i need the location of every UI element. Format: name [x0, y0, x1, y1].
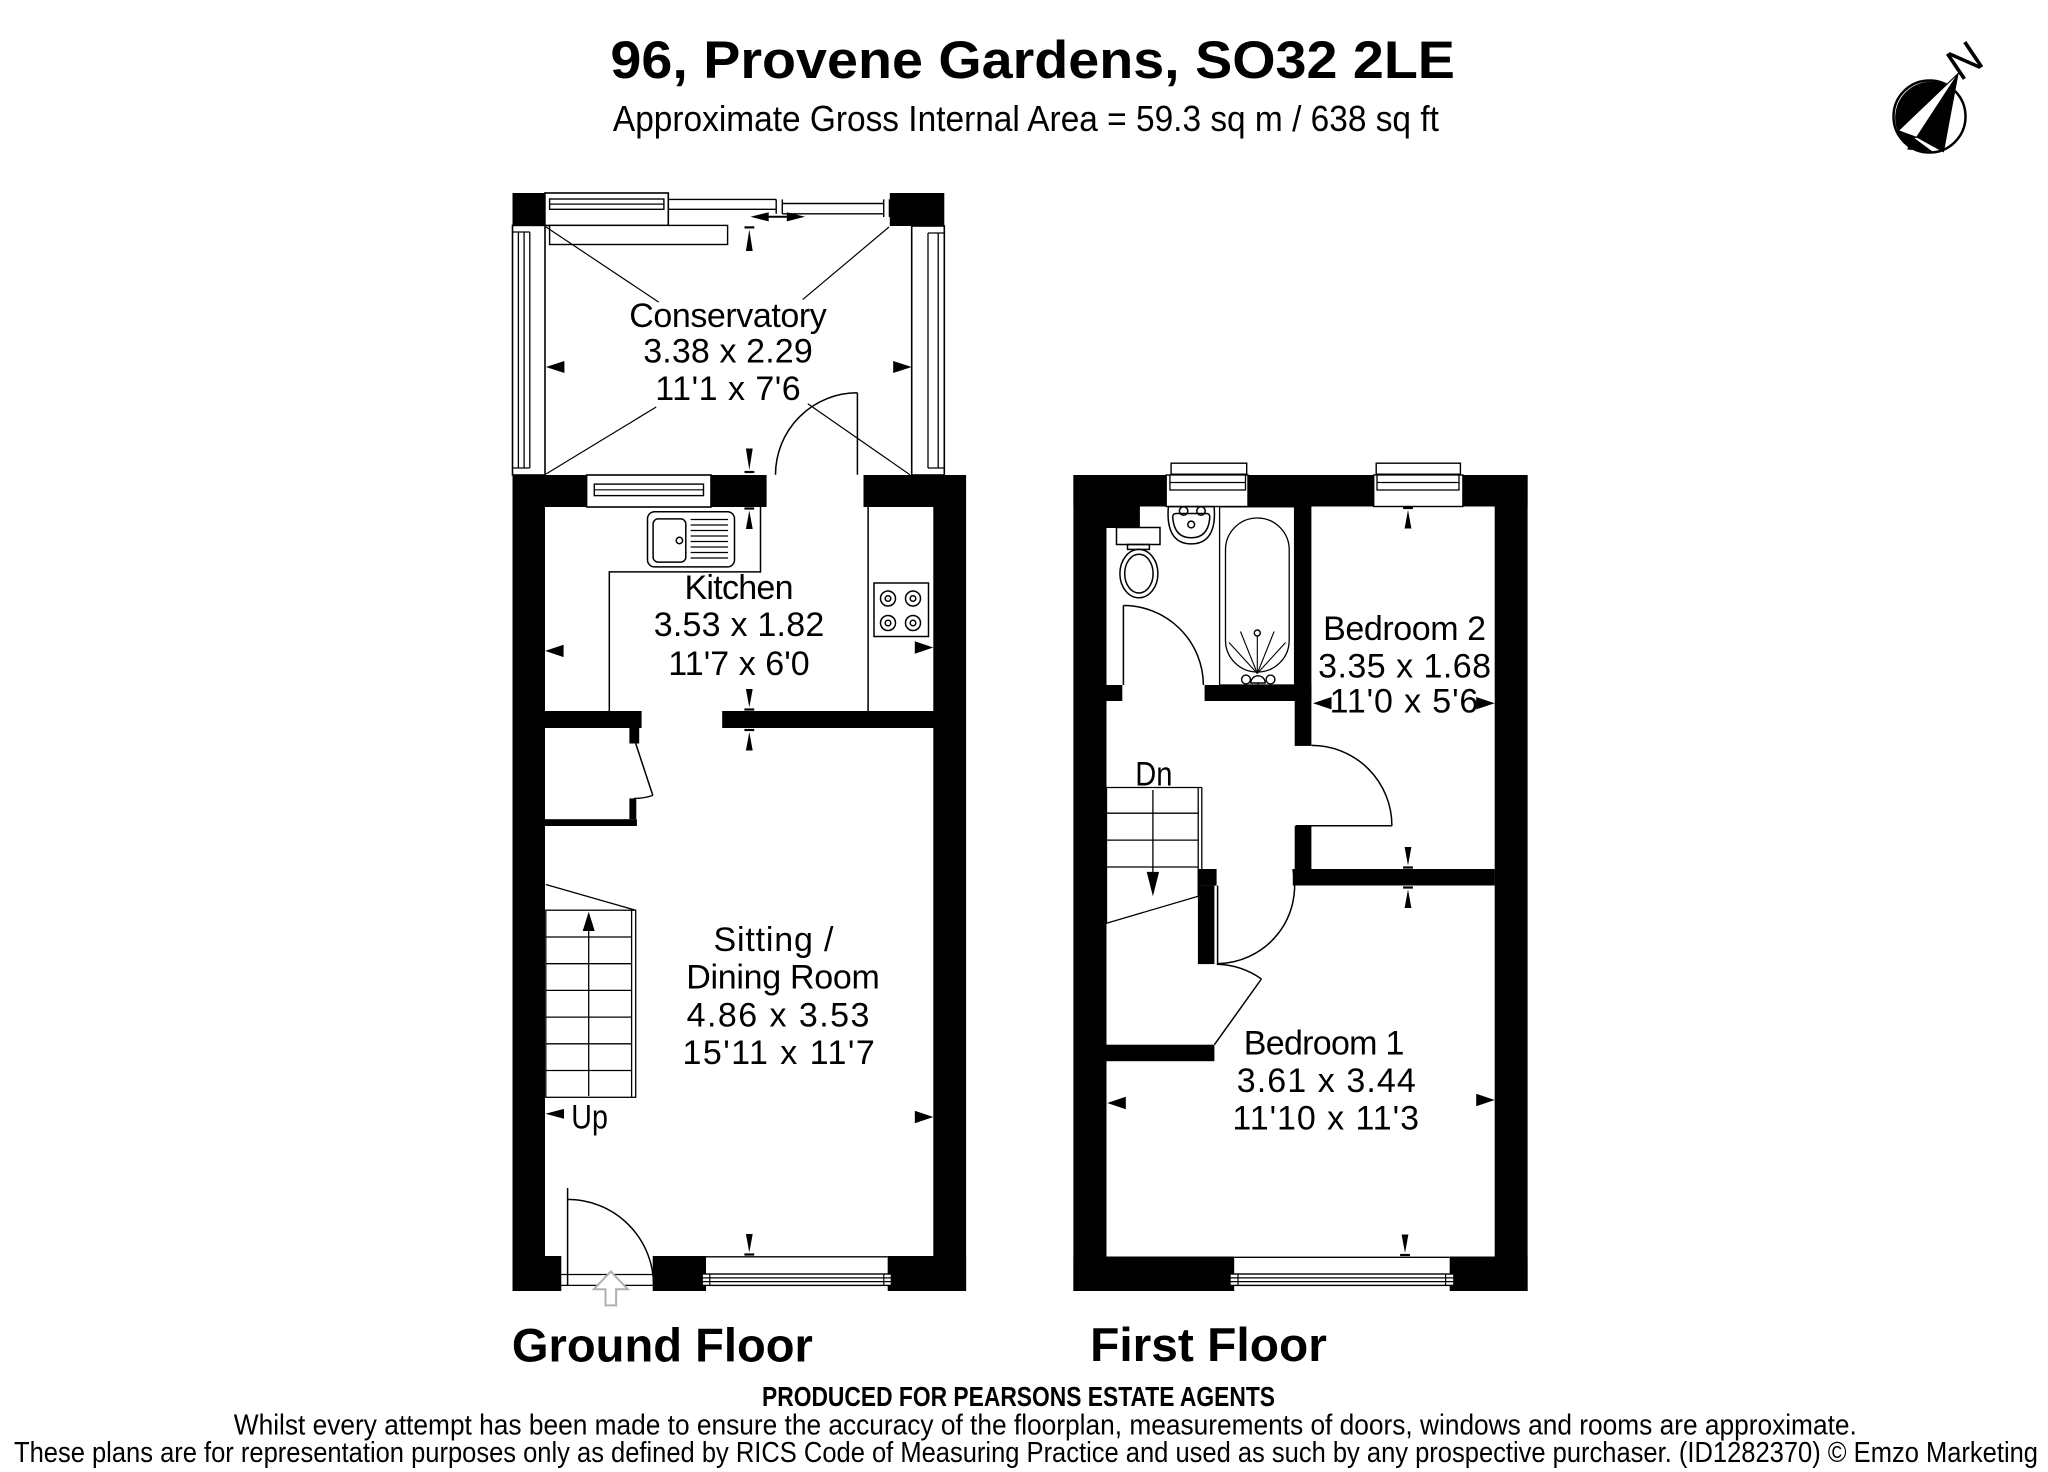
svg-text:3.38 x 2.29: 3.38 x 2.29: [643, 333, 813, 371]
svg-text:Sitting /: Sitting /: [714, 921, 834, 959]
svg-text:11'10 x 11'3: 11'10 x 11'3: [1232, 1100, 1419, 1138]
svg-text:3.35 x 1.68: 3.35 x 1.68: [1318, 648, 1491, 686]
svg-text:PRODUCED FOR PEARSONS ESTATE A: PRODUCED FOR PEARSONS ESTATE AGENTS: [762, 1381, 1275, 1412]
svg-text:Bedroom 1: Bedroom 1: [1244, 1025, 1405, 1063]
svg-text:11'7 x 6'0: 11'7 x 6'0: [668, 645, 809, 683]
svg-text:Ground Floor: Ground Floor: [512, 1319, 813, 1372]
svg-text:3.53 x 1.82: 3.53 x 1.82: [654, 606, 825, 644]
svg-text:11'0 x 5'6: 11'0 x 5'6: [1330, 683, 1479, 721]
svg-text:These plans are for representa: These plans are for representation purpo…: [14, 1437, 2038, 1469]
svg-text:Bedroom 2: Bedroom 2: [1323, 610, 1486, 648]
svg-text:4.86 x 3.53: 4.86 x 3.53: [687, 996, 870, 1034]
svg-text:Dining Room: Dining Room: [686, 959, 880, 997]
svg-text:11'1 x 7'6: 11'1 x 7'6: [655, 370, 800, 408]
svg-text:15'11 x 11'7: 15'11 x 11'7: [682, 1034, 874, 1072]
svg-text:3.61 x 3.44: 3.61 x 3.44: [1237, 1062, 1416, 1100]
svg-text:Dn: Dn: [1135, 756, 1172, 794]
svg-text:Conservatory: Conservatory: [629, 297, 826, 335]
svg-text:Approximate Gross Internal Are: Approximate Gross Internal Area = 59.3 s…: [613, 98, 1439, 139]
svg-text:96, Provene Gardens, SO32 2LE: 96, Provene Gardens, SO32 2LE: [610, 31, 1455, 90]
svg-text:Up: Up: [571, 1099, 608, 1137]
svg-text:First Floor: First Floor: [1090, 1318, 1327, 1371]
svg-text:Kitchen: Kitchen: [684, 569, 793, 607]
